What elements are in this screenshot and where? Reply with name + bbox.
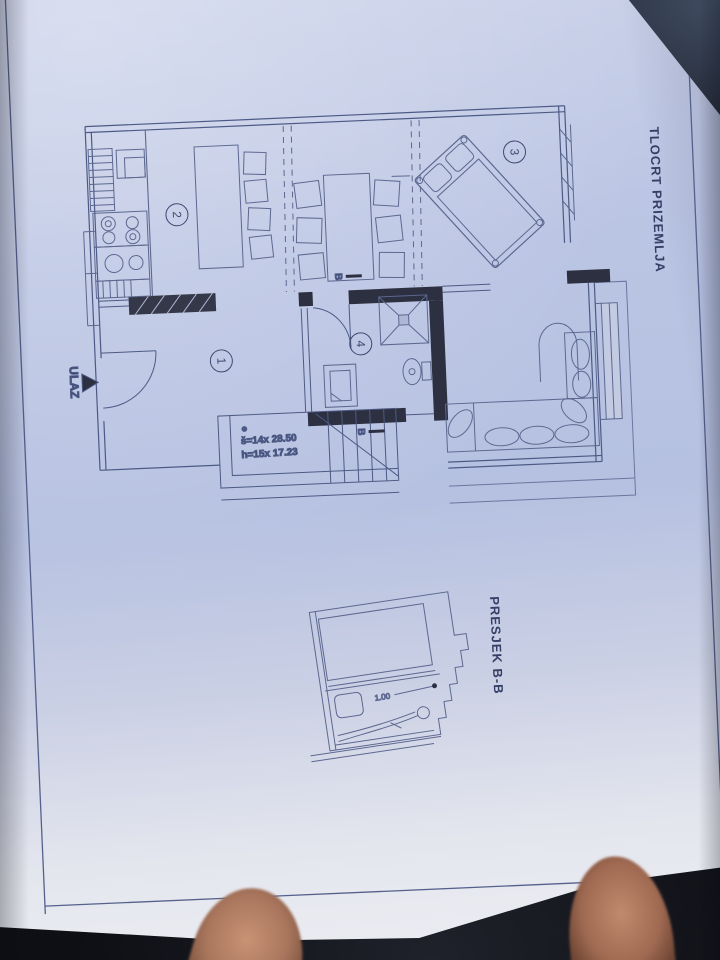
stairs-note-line1: š=14x 28.50 bbox=[241, 433, 298, 447]
section-drawing: 1.00 bbox=[290, 590, 482, 762]
dishwasher bbox=[96, 279, 151, 298]
stairs-note: š=14x 28.50 h=15x 17.23 bbox=[240, 433, 298, 461]
kitchen-island-with-stools bbox=[194, 144, 274, 269]
plan-title: TLOCRT PRIZEMLJA bbox=[647, 127, 668, 274]
drawing-frame-border bbox=[5, 0, 720, 914]
section-marker-bottom: B bbox=[355, 428, 366, 436]
room-number-3: 3 bbox=[507, 148, 521, 156]
person-lying-icon bbox=[331, 706, 434, 746]
section-upper-volume bbox=[318, 604, 432, 681]
room-number-1: 1 bbox=[214, 357, 228, 365]
entrance-label: ULAZ bbox=[66, 366, 81, 399]
washbasin-icon bbox=[324, 364, 358, 407]
photo-of-floor-plan: 1 2 3 4 š=14x 28.50 h=15x 17.23 B bbox=[0, 0, 720, 960]
bathroom-walls bbox=[298, 286, 448, 426]
section-marker-top: B bbox=[332, 273, 343, 281]
section-dimension-group: 1.00 bbox=[374, 683, 438, 703]
entrance-door-arc bbox=[101, 351, 158, 408]
kitchen-cabinet bbox=[116, 149, 145, 178]
bathroom-door-arc bbox=[313, 306, 351, 350]
stairs-note-line2: h=15x 17.23 bbox=[241, 447, 298, 461]
room-number-4: 4 bbox=[354, 340, 368, 348]
dining-area bbox=[279, 120, 426, 292]
toilet-icon bbox=[402, 358, 431, 385]
section-title: PRESJEK B-B bbox=[487, 596, 506, 695]
entrance-label-group: ULAZ bbox=[66, 365, 98, 398]
bathroom bbox=[298, 286, 448, 426]
stove-icon bbox=[93, 211, 148, 247]
sofa-icon bbox=[439, 322, 599, 453]
section-dimension-label: 1.00 bbox=[374, 691, 391, 702]
floor-plan: 1 2 3 4 š=14x 28.50 h=15x 17.23 B bbox=[56, 103, 636, 519]
sink-icon bbox=[94, 245, 149, 281]
entrance-door-leaf bbox=[101, 351, 156, 353]
section-cabinet bbox=[334, 692, 364, 719]
exterior-walls bbox=[85, 105, 602, 484]
dining-table-icon bbox=[323, 173, 374, 281]
entrance bbox=[101, 351, 158, 408]
room-number-2: 2 bbox=[170, 211, 184, 219]
room-labels: 1 2 3 4 bbox=[163, 140, 534, 374]
black-wall-segment bbox=[567, 269, 611, 284]
architectural-drawing: 1 2 3 4 š=14x 28.50 h=15x 17.23 B bbox=[0, 0, 720, 960]
blueprint-paper-sheet: 1 2 3 4 š=14x 28.50 h=15x 17.23 B bbox=[0, 0, 720, 960]
